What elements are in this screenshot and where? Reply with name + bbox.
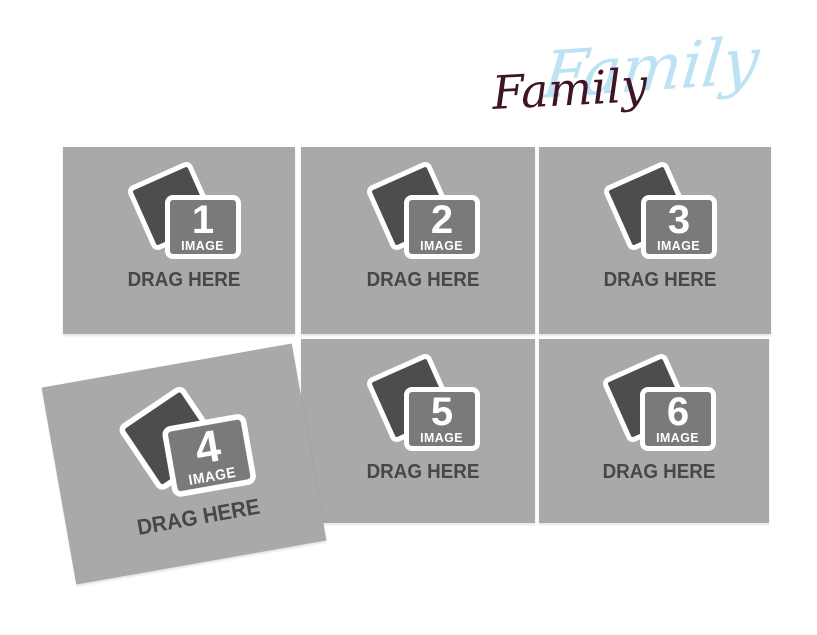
placeholder-number: 5 <box>431 393 453 431</box>
placeholder-number: 2 <box>431 201 453 239</box>
photo-front-frame-icon: 6 IMAGE <box>640 387 716 451</box>
photo-stack-icon: 1 IMAGE <box>125 161 243 263</box>
placeholder-number: 4 <box>192 425 224 471</box>
drag-here-label: DRAG HERE <box>603 461 716 484</box>
placeholder-number: 3 <box>668 201 690 239</box>
drag-here-label: DRAG HERE <box>604 269 717 292</box>
drop-zone-6[interactable]: 6 IMAGE DRAG HERE <box>539 339 769 523</box>
image-label: IMAGE <box>421 431 464 444</box>
collage-template-canvas: Family Family 1 IMAGE DRAG HERE 2 IMAGE … <box>0 0 817 635</box>
placeholder-number: 1 <box>192 201 214 239</box>
photo-front-frame-icon: 3 IMAGE <box>641 195 717 259</box>
photo-stack-icon: 5 IMAGE <box>364 353 482 455</box>
photo-stack-icon: 6 IMAGE <box>600 353 718 455</box>
photo-front-frame-icon: 2 IMAGE <box>404 195 480 259</box>
drag-here-label: DRAG HERE <box>367 461 480 484</box>
drop-zone-5[interactable]: 5 IMAGE DRAG HERE <box>301 339 535 523</box>
image-label: IMAGE <box>188 464 238 487</box>
image-label: IMAGE <box>657 431 700 444</box>
photo-front-frame-icon: 5 IMAGE <box>404 387 480 451</box>
drop-zone-1[interactable]: 1 IMAGE DRAG HERE <box>63 147 295 334</box>
photo-stack-icon: 2 IMAGE <box>364 161 482 263</box>
drop-zone-4[interactable]: 4 IMAGE DRAG HERE <box>42 343 327 584</box>
image-label: IMAGE <box>182 239 225 252</box>
photo-front-frame-icon: 1 IMAGE <box>165 195 241 259</box>
image-label: IMAGE <box>421 239 464 252</box>
photo-stack-icon: 3 IMAGE <box>601 161 719 263</box>
drag-here-label: DRAG HERE <box>128 269 241 292</box>
photo-front-frame-icon: 4 IMAGE <box>161 413 257 498</box>
drop-zone-3[interactable]: 3 IMAGE DRAG HERE <box>539 147 771 334</box>
photo-stack-icon: 4 IMAGE <box>110 375 260 510</box>
page-title: Family <box>491 62 648 116</box>
placeholder-number: 6 <box>667 393 689 431</box>
drag-here-label: DRAG HERE <box>367 269 480 292</box>
drop-zone-2[interactable]: 2 IMAGE DRAG HERE <box>301 147 535 334</box>
image-label: IMAGE <box>658 239 701 252</box>
